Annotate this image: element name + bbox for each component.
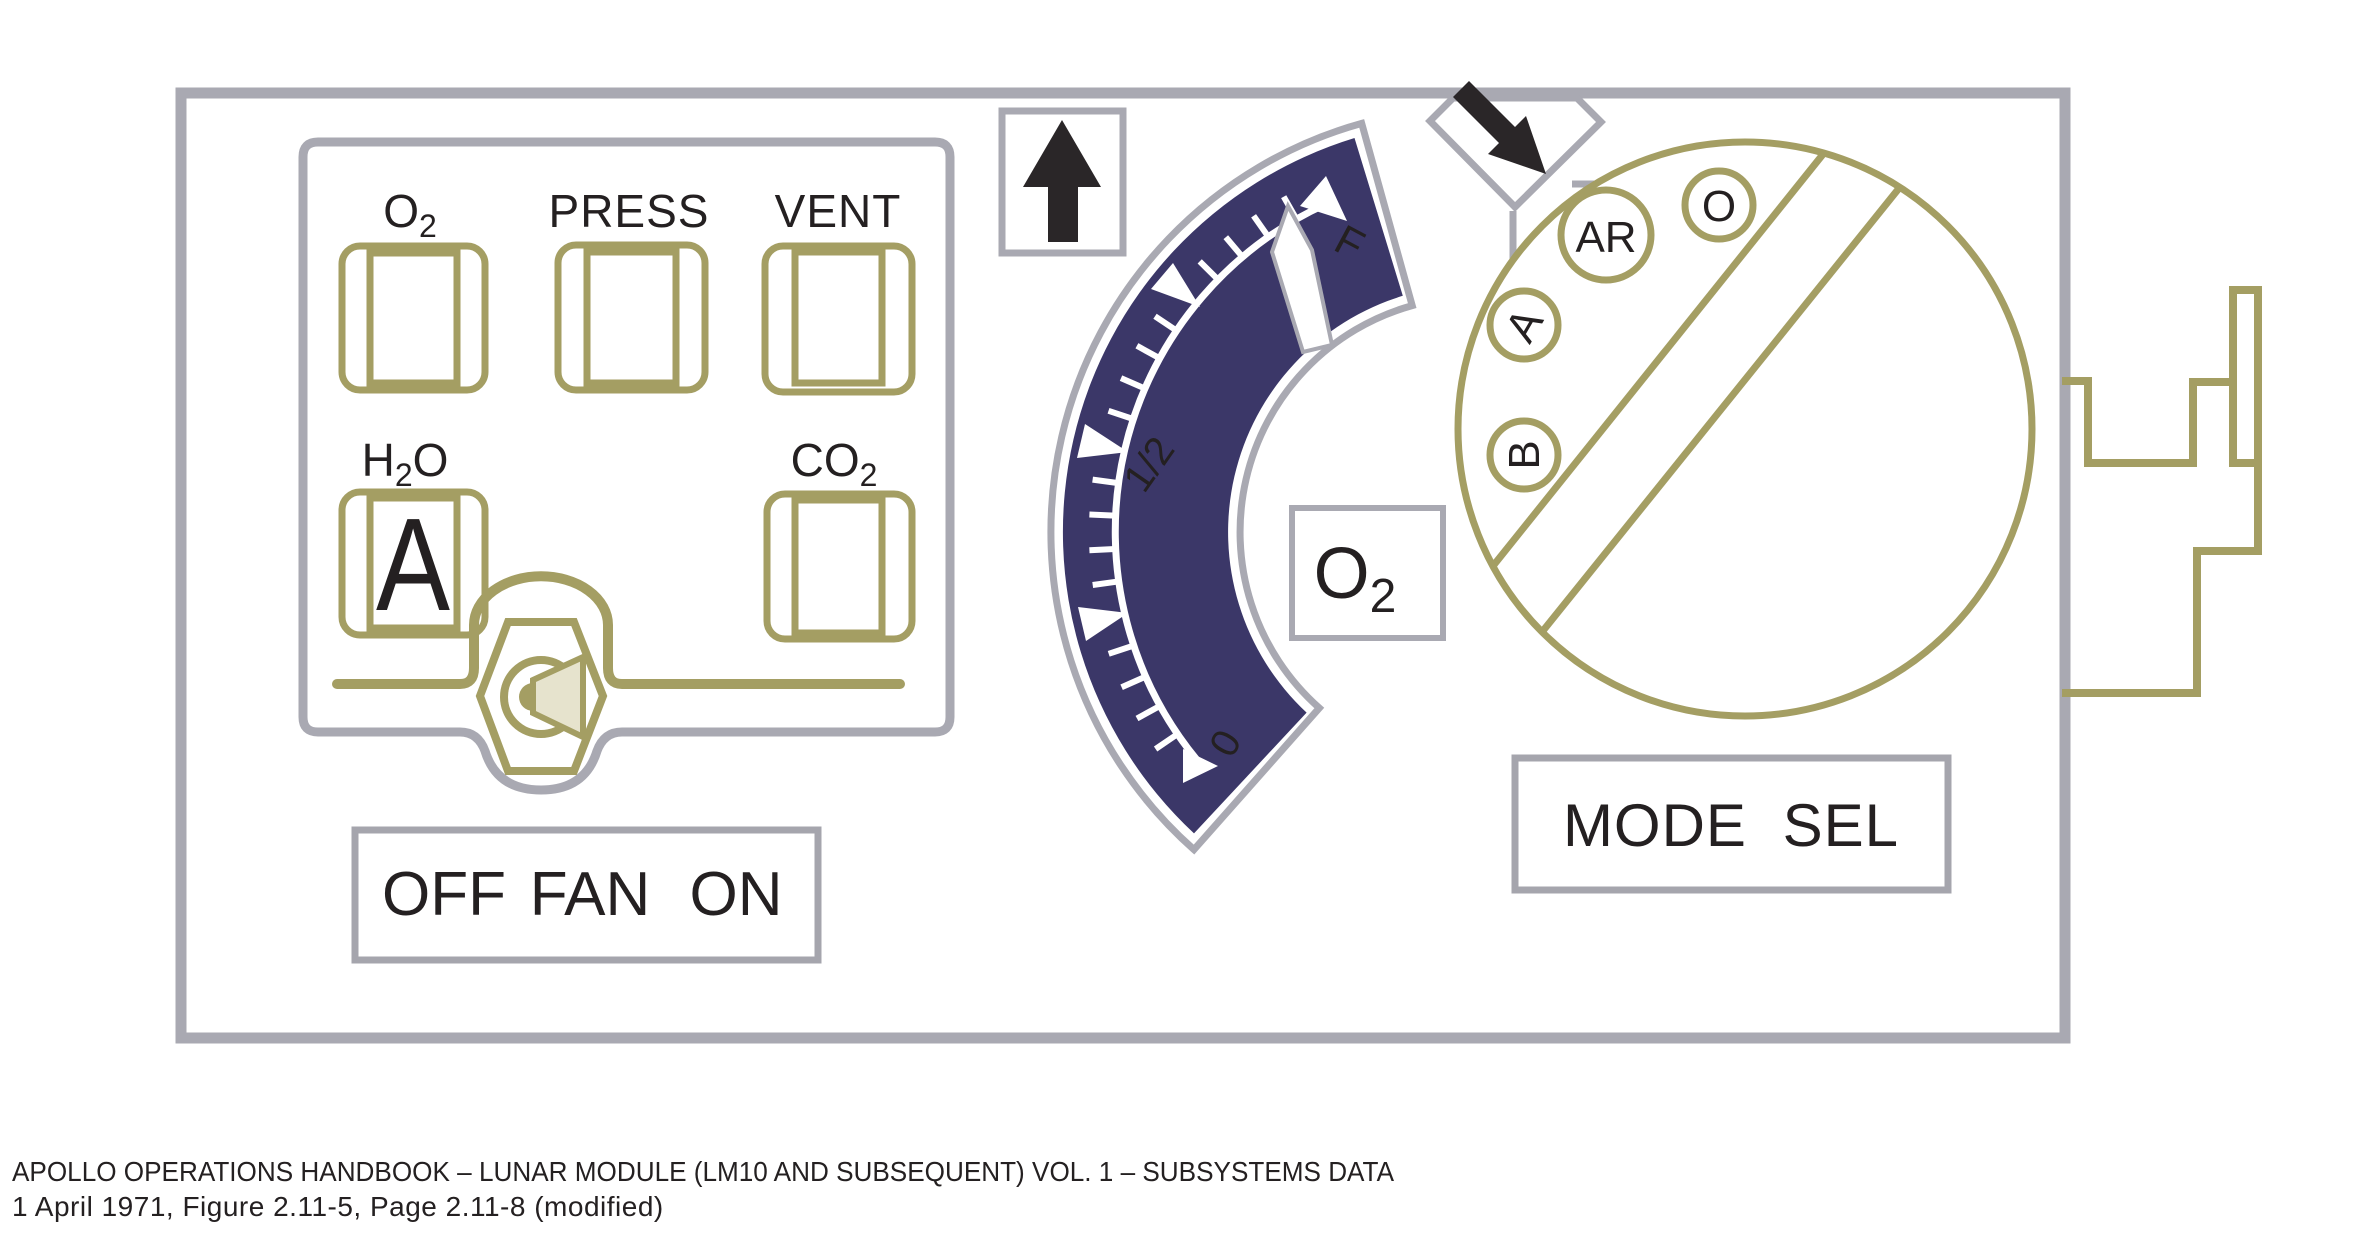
h2o-flag-value: A	[376, 491, 450, 638]
up-arrow-callout	[1002, 111, 1123, 253]
selector-position-ar-label: AR	[1575, 213, 1636, 262]
panel-connector-schematic	[2062, 290, 2258, 693]
co2-flag-window	[767, 494, 912, 639]
fan-on-label: ON	[690, 860, 783, 929]
selector-position-b-label: B	[1500, 440, 1549, 469]
mode-sel-label: MODE SEL	[1563, 792, 1899, 859]
o2-flag-window	[342, 246, 485, 390]
press-flag-window	[558, 245, 705, 390]
vent-flag-label: VENT	[775, 185, 902, 237]
press-flag-label: PRESS	[549, 185, 710, 237]
caption-line-2: 1 April 1971, Figure 2.11-5, Page 2.11-8…	[12, 1191, 664, 1222]
handbook-figure-page: O2 PRESS VENT H2O CO2 A	[0, 0, 2362, 1241]
fan-off-label: OFF	[382, 860, 506, 929]
mode-selector: AR O A B	[1458, 142, 2032, 716]
vent-flag-window	[765, 246, 912, 392]
selector-position-o-label: O	[1702, 182, 1736, 231]
fan-knob	[480, 622, 603, 771]
fan-label: FAN	[530, 860, 651, 929]
caption-line-1: APOLLO OPERATIONS HANDBOOK – LUNAR MODUL…	[12, 1156, 1394, 1187]
